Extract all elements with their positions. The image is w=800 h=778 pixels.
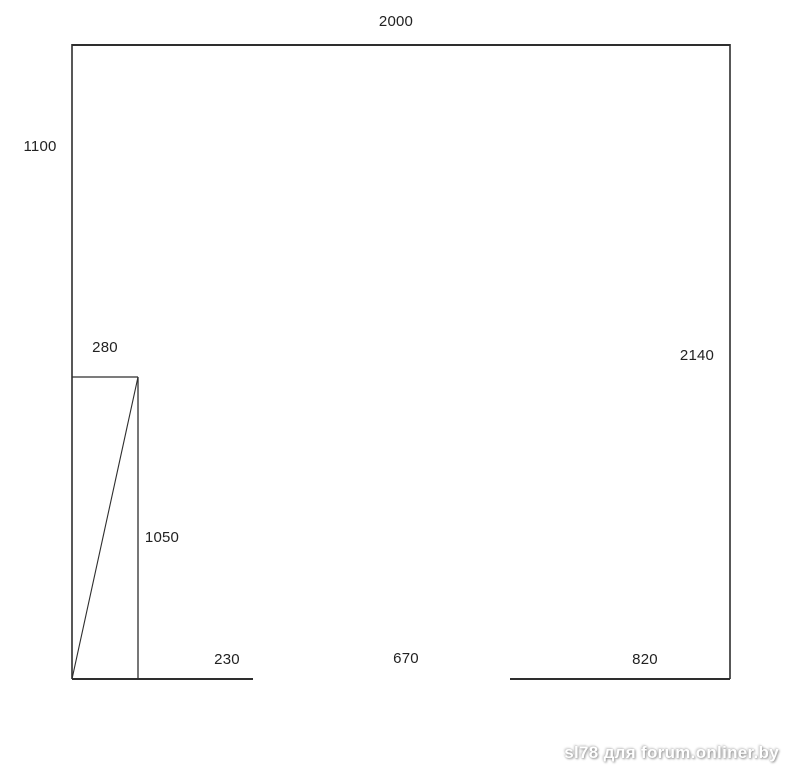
- dimension-label-door-width: 280: [77, 340, 133, 356]
- dimension-label-right-height: 2140: [669, 348, 725, 364]
- watermark-text: sl78 для forum.onliner.by: [564, 743, 779, 763]
- dimension-label-door-height: 1050: [134, 530, 190, 546]
- door-diagonal-line: [72, 377, 138, 679]
- dimension-label-top-width: 2000: [368, 14, 424, 30]
- dimension-label-bottom-left-segment: 230: [199, 652, 255, 668]
- dimension-label-bottom-opening: 670: [378, 651, 434, 667]
- dimension-label-left-upper-height: 1100: [12, 139, 68, 155]
- dimension-label-bottom-right-segment: 820: [617, 652, 673, 668]
- sketch-canvas: 2000 1100 280 2140 1050 230 670 820 sl78…: [0, 0, 800, 778]
